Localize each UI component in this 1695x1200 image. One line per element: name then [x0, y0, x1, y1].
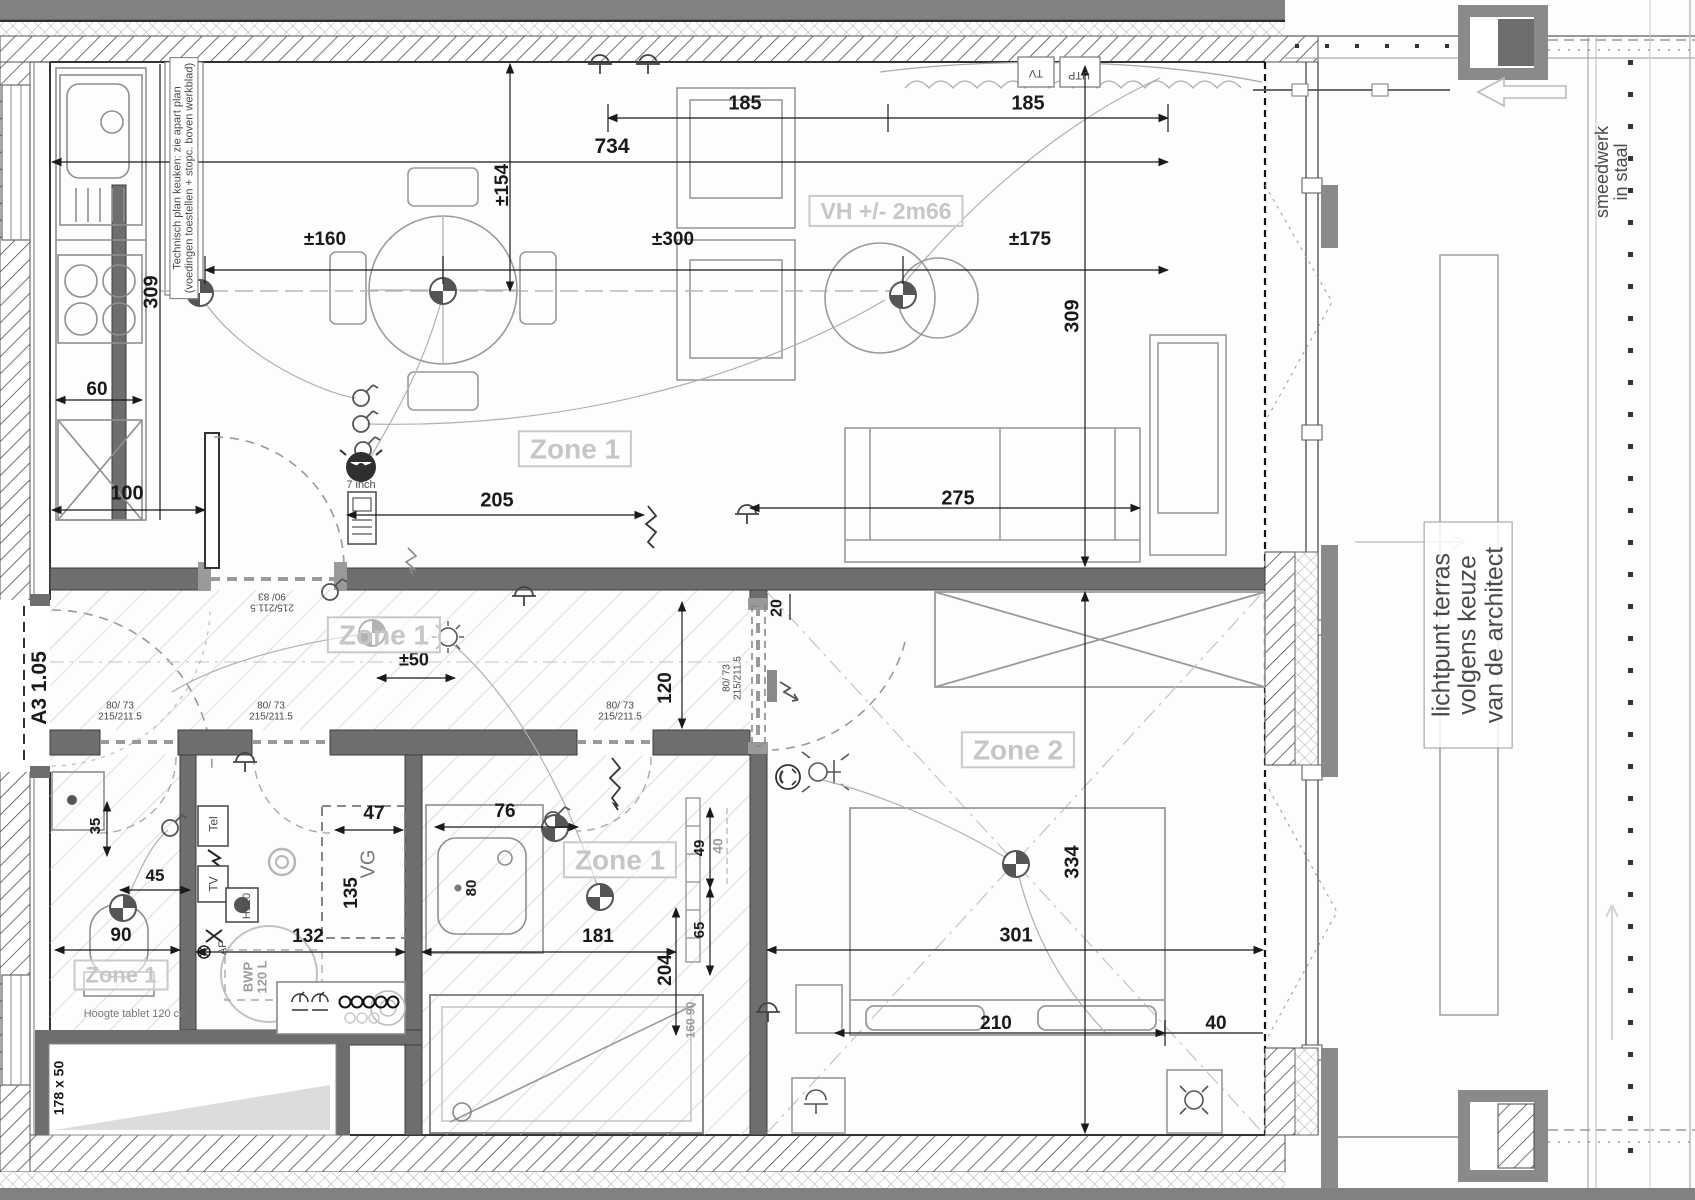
- kitchen-note-box: [165, 62, 203, 295]
- floor-plan-drawing: [0, 0, 1695, 1200]
- washing-machine: [277, 982, 405, 1034]
- corner-box-left: [792, 1078, 845, 1133]
- sofa: [845, 428, 1140, 562]
- right-facade: [1265, 62, 1338, 1188]
- bed: [850, 808, 1165, 1035]
- presence-figure: [802, 752, 849, 792]
- terrace-column-top: [1458, 5, 1548, 80]
- left-window-top: [2, 85, 30, 240]
- kitchen-sink: [60, 75, 142, 225]
- tech-room: [198, 806, 405, 1034]
- wardrobe: [935, 592, 1265, 687]
- nightstand-left: [796, 985, 842, 1033]
- bedroom-switch: [767, 670, 777, 702]
- left-window-bottom: [2, 975, 30, 1085]
- kitchen-hob: [58, 255, 142, 343]
- floor-plan-page: 185185734±154±160±300±175309309275205100…: [0, 0, 1695, 1200]
- kitchen: [56, 68, 146, 520]
- videophone: [340, 450, 382, 544]
- terrace-column-bottom: [1458, 1090, 1548, 1182]
- hall-floor: [50, 590, 750, 730]
- thermostat-drop: [646, 506, 656, 548]
- gate-arrow: [1478, 78, 1566, 106]
- tv-cabinet: [1150, 335, 1226, 555]
- steel-railing-dots: [1628, 60, 1633, 1153]
- bath-floor: [422, 755, 750, 1135]
- washer-reserve-vg: [322, 806, 405, 938]
- lichtpunt-box: [1440, 255, 1498, 1015]
- lightwell: [35, 1030, 350, 1135]
- slope-arrows: [1355, 536, 1618, 1040]
- armchairs: [677, 88, 795, 380]
- kitchen-fridge: [58, 420, 142, 520]
